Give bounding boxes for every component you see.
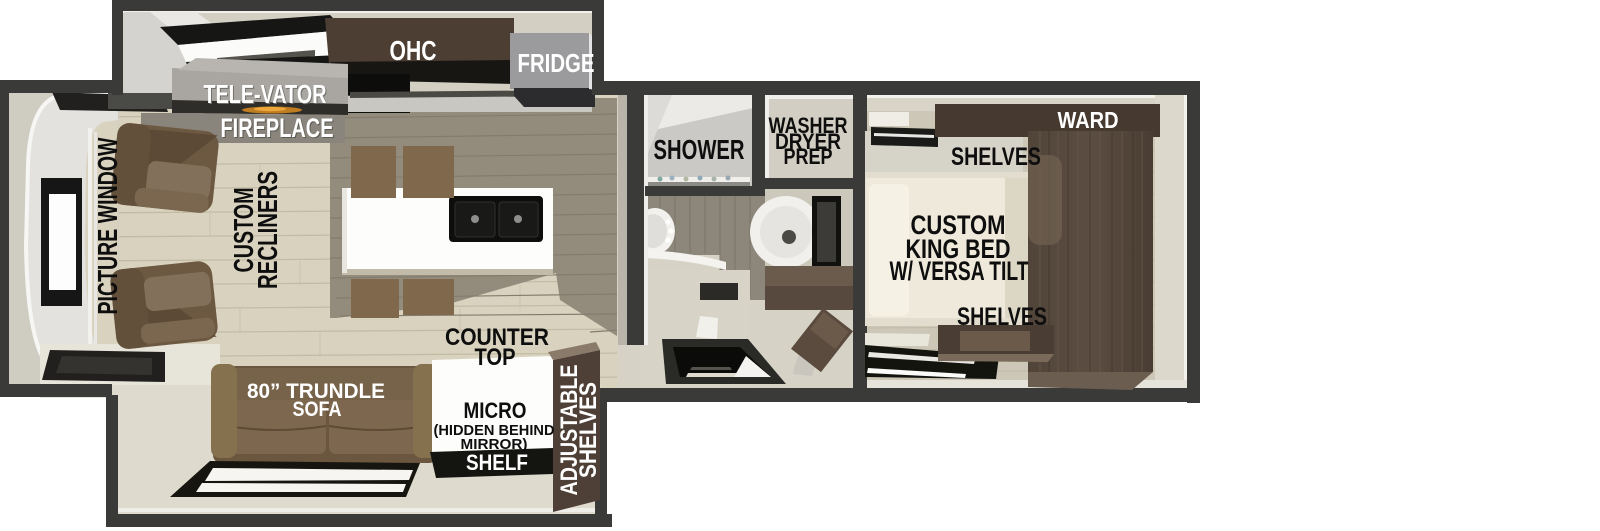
svg-text:PREP: PREP bbox=[784, 144, 833, 169]
svg-text:MICRO: MICRO bbox=[464, 398, 527, 423]
svg-text:SHELVES: SHELVES bbox=[575, 382, 602, 478]
svg-text:SHOWER: SHOWER bbox=[654, 134, 745, 165]
svg-text:RECLINERS: RECLINERS bbox=[252, 171, 283, 289]
svg-text:SHELF: SHELF bbox=[466, 450, 528, 475]
svg-text:OHC: OHC bbox=[390, 35, 437, 66]
svg-text:W/ VERSA TILT: W/ VERSA TILT bbox=[890, 256, 1029, 286]
svg-text:SHELVES: SHELVES bbox=[951, 143, 1041, 171]
svg-text:TOP: TOP bbox=[475, 344, 516, 371]
svg-text:SOFA: SOFA bbox=[293, 398, 342, 421]
svg-text:PICTURE WINDOW: PICTURE WINDOW bbox=[92, 137, 123, 314]
svg-text:SHELVES: SHELVES bbox=[957, 303, 1047, 331]
svg-text:TELE-VATOR: TELE-VATOR bbox=[204, 79, 327, 109]
svg-text:FIREPLACE: FIREPLACE bbox=[221, 113, 334, 143]
svg-text:FRIDGE: FRIDGE bbox=[518, 48, 595, 78]
svg-text:WARD: WARD bbox=[1058, 107, 1119, 133]
